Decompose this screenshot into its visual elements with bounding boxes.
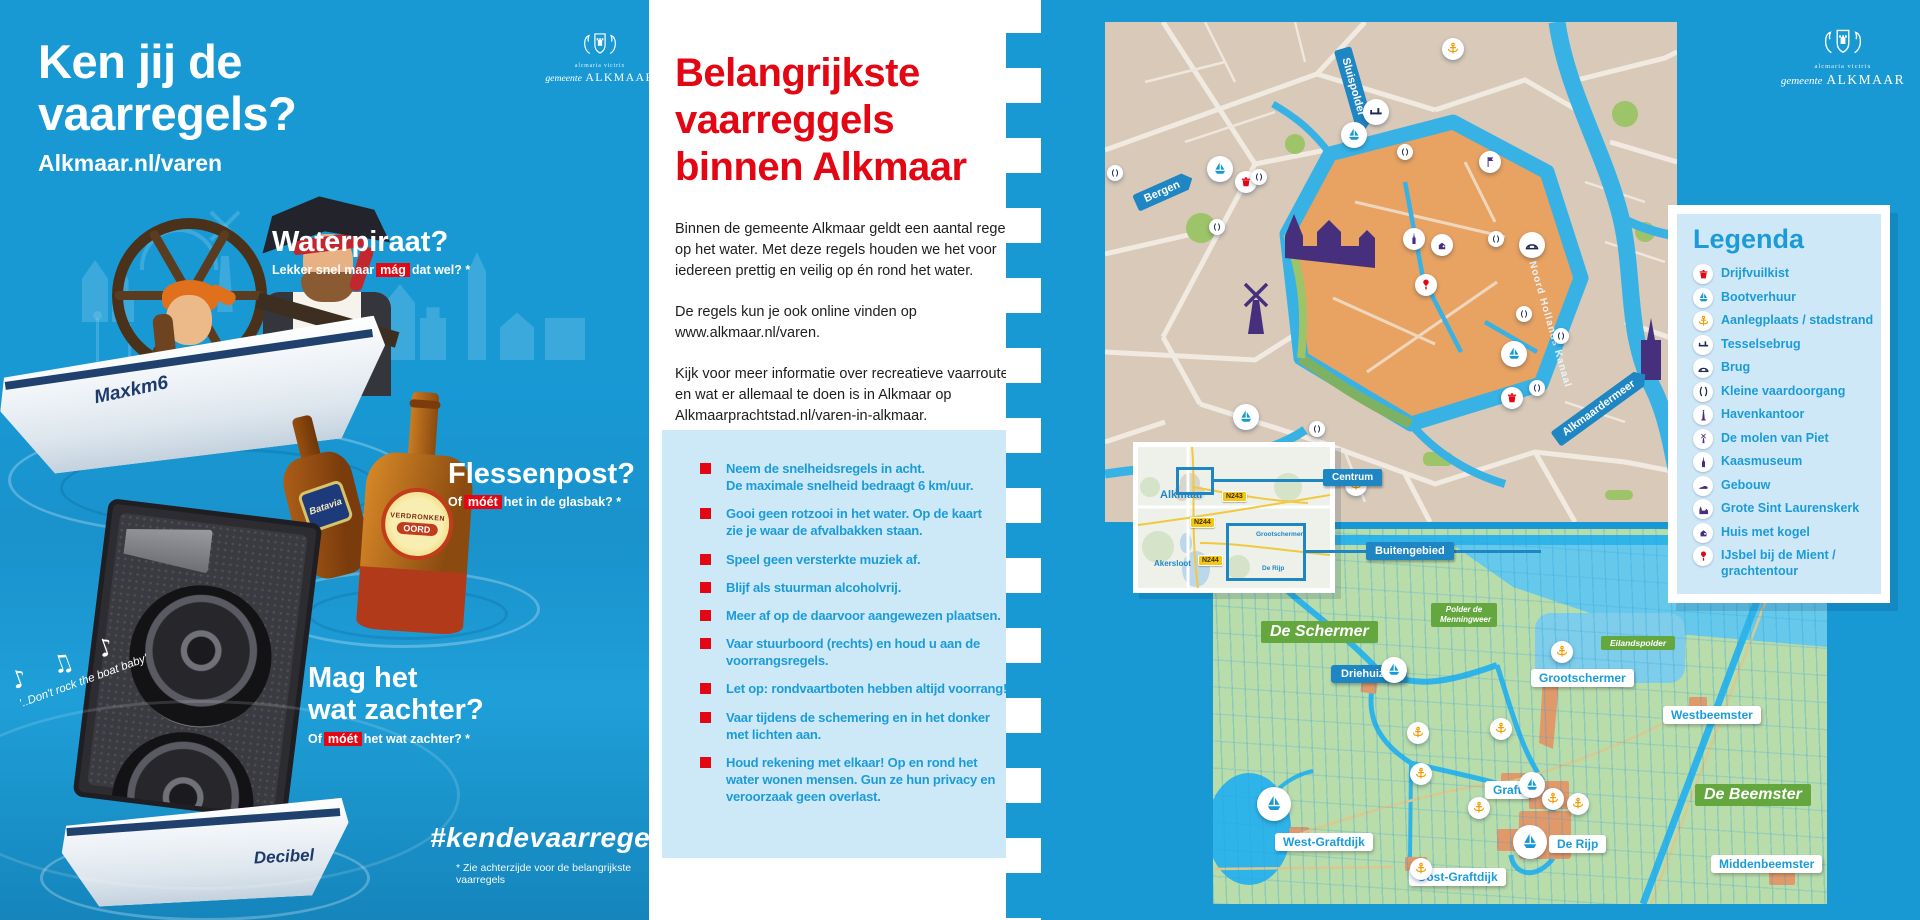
legend-title: Legenda — [1693, 224, 1881, 255]
church-tower-silhouette-icon — [468, 252, 486, 360]
inset-highlight-buitengebied — [1226, 523, 1306, 581]
area-label-schermer: De Schermer — [1261, 621, 1378, 643]
cannonball-house-icon — [1693, 523, 1713, 543]
mooring-anchor-icon — [1410, 858, 1432, 880]
inset-highlight-centrum — [1176, 467, 1214, 495]
heading-line-2: vaarreggels — [675, 98, 894, 142]
road-shield-n244: N244 — [1190, 517, 1215, 528]
rule-item: Speel geen versterkte muziek af. — [726, 551, 1008, 568]
floating-waste-bin-icon — [1693, 264, 1713, 284]
small-passage-icon — [1516, 306, 1532, 322]
rule-item: Meer af op de daarvoor aangewezen plaats… — [726, 607, 1008, 624]
page-title: Ken jij devaarregels? — [38, 36, 296, 139]
logo-org: gemeente — [545, 73, 582, 84]
legend-label: Brug — [1721, 358, 1750, 376]
inset-label-centrum: Centrum — [1323, 469, 1382, 486]
logo-name: ALKMAAR — [1826, 72, 1905, 87]
legend-label: Tesselsebrug — [1721, 335, 1801, 353]
intro-paragraph: Kijk voor meer informatie over recreatie… — [675, 364, 1031, 427]
subtitle-text: het in de glasbak? * — [504, 495, 621, 509]
boat-rental-icon — [1519, 772, 1545, 798]
legend-label: Huis met kogel — [1721, 523, 1810, 541]
logo-wordmark: gemeenteALKMAAR — [1781, 71, 1905, 89]
legend-item: Gebouw — [1693, 476, 1881, 496]
cheese-museum-icon — [1403, 228, 1425, 250]
rules-heading: Belangrijkste vaarreggels binnen Alkmaar — [675, 50, 967, 190]
alkmaar-crest-icon — [574, 30, 625, 62]
gemeente-alkmaar-logo: alcmaria victrix gemeenteALKMAAR — [1788, 26, 1898, 89]
small-passage-icon — [1488, 231, 1504, 247]
legend-item: Tesselsebrug — [1693, 335, 1881, 355]
legend-label: Kleine vaardoorgang — [1721, 382, 1845, 400]
region-label-buitengebied: Buitengebied — [1366, 542, 1454, 560]
small-passage-icon — [1529, 380, 1545, 396]
boat-rental-icon — [1341, 122, 1367, 148]
logo-org: gemeente — [1781, 75, 1823, 87]
tessel-bridge-icon — [1693, 335, 1713, 355]
legend-item: De molen van Piet — [1693, 429, 1881, 449]
question-title: Flessenpost? — [448, 458, 635, 490]
legend-label: Gebouw — [1721, 476, 1770, 494]
harbor-office-icon — [1693, 405, 1713, 425]
bottle-label-line2: OORD — [396, 521, 438, 536]
bridge-icon — [1693, 358, 1713, 378]
legend-item: Drijfvuilkist — [1693, 264, 1881, 284]
inset-overview-map: Alkmaar Grootschermer De Rijp Akersloot … — [1133, 442, 1335, 593]
legend-item: Aanlegplaats / stadstrand — [1693, 311, 1881, 331]
intro-text: Binnen de gemeente Alkmaar geldt een aan… — [675, 219, 1031, 447]
alkmaar-crest-icon — [1814, 26, 1872, 62]
legend-items: Drijfvuilkist Bootverhuur Aanlegplaats /… — [1693, 264, 1881, 579]
sawtooth-divider — [1006, 0, 1041, 920]
legend-item: Huis met kogel — [1693, 523, 1881, 543]
legend-item: Havenkantoor — [1693, 405, 1881, 425]
title-line-2: vaarregels? — [38, 87, 296, 140]
intro-paragraph: De regels kun je ook online vinden op ww… — [675, 302, 1031, 344]
harbor-flag-icon — [1479, 151, 1501, 173]
small-passage-icon — [1107, 165, 1123, 181]
place-label-de-rijp: De Rijp — [1549, 835, 1606, 853]
small-passage-icon — [1693, 382, 1713, 402]
logo-wordmark: gemeenteALKMAAR — [545, 70, 654, 86]
church-icon — [1693, 499, 1713, 519]
legend-item: Kleine vaardoorgang — [1693, 382, 1881, 402]
front-cover-panel: Ken jij devaarregels? Alkmaar.nl/varen — [0, 0, 649, 920]
campaign-hashtag: #kendevaarregels — [430, 822, 649, 854]
area-label-eilandspolder: Eilandspolder — [1601, 636, 1675, 650]
floating-waste-bin-icon — [1501, 387, 1523, 409]
legend-item: Kaasmuseum — [1693, 452, 1881, 472]
mooring-anchor-icon — [1567, 793, 1589, 815]
heading-line-3: binnen Alkmaar — [675, 145, 967, 189]
question-title: Waterpiraat? — [272, 226, 470, 258]
question-flessenpost: Flessenpost? Ofmóéthet in de glasbak? * — [448, 458, 635, 509]
title-line-1: Ken jij de — [38, 35, 242, 88]
small-passage-icon — [1209, 219, 1225, 235]
question-subtitle: Ofmóéthet in de glasbak? * — [448, 495, 635, 509]
icecream-canal-tour-icon — [1693, 546, 1713, 566]
area-label-menningweer: Polder de Menningweer — [1431, 603, 1497, 627]
rule-item: Blijf als stuurman alcoholvrij. — [726, 579, 1008, 596]
footnote: * Zie achterzijde voor de belangrijkste … — [456, 862, 649, 886]
logo-motto: alcmaria victrix — [575, 63, 625, 69]
mooring-anchor-icon — [1693, 311, 1713, 331]
legend-item: Brug — [1693, 358, 1881, 378]
intro-paragraph: Binnen de gemeente Alkmaar geldt een aan… — [675, 219, 1031, 282]
rule-item: Gooi geen rotzooi in het water. Op de ka… — [726, 505, 1008, 539]
subtitle-text: Of — [448, 495, 462, 509]
mooring-anchor-icon — [1490, 718, 1512, 740]
legend-item: IJsbel bij de Mient / grachtentour — [1693, 546, 1881, 579]
brochure-spread: Ken jij devaarregels? Alkmaar.nl/varen — [0, 0, 1920, 920]
mooring-anchor-icon — [1542, 788, 1564, 810]
subtitle-text: dat wel? * — [412, 263, 470, 277]
boat-rental-icon — [1693, 288, 1713, 308]
cannonball-house-icon — [1431, 234, 1453, 256]
legend-item: Bootverhuur — [1693, 288, 1881, 308]
legend-label: Bootverhuur — [1721, 288, 1796, 306]
legend-body: Legenda Drijfvuilkist Bootverhuur Aanleg… — [1677, 214, 1881, 594]
rule-item: Neem de snelheidsregels in acht. De maxi… — [726, 460, 1008, 494]
inset-label-akersloot: Akersloot — [1154, 559, 1191, 568]
small-passage-icon — [1553, 328, 1569, 344]
rule-item: Houd rekening met elkaar! Op en rond het… — [726, 754, 1008, 805]
rule-item: Vaar tijdens de schemering en in het don… — [726, 709, 1008, 743]
canal-house-icon — [545, 318, 585, 360]
legend-label: Kaasmuseum — [1721, 452, 1802, 470]
place-label-westbeemster: Westbeemster — [1663, 706, 1761, 724]
boat-rental-icon — [1257, 787, 1291, 821]
rule-item: Vaar stuurboord (rechts) en houd u aan d… — [726, 635, 1008, 669]
cheese-museum-icon — [1693, 452, 1713, 472]
bottle-label-line1: VERDRONKEN — [390, 512, 445, 523]
subtitle-text: Lekker snel maar — [272, 263, 374, 277]
legend-label: IJsbel bij de Mient / grachtentour — [1721, 546, 1881, 579]
question-subtitle: Lekker snel maarmágdat wel? * — [272, 263, 470, 277]
icecream-canal-tour-icon — [1415, 274, 1437, 296]
heading-line-1: Belangrijkste — [675, 51, 920, 95]
road-shield-n244: N244 — [1198, 555, 1223, 566]
legend-label: Drijfvuilkist — [1721, 264, 1789, 282]
boat-rental-icon — [1513, 825, 1547, 859]
windmill-icon — [1693, 429, 1713, 449]
legend-label: De molen van Piet — [1721, 429, 1829, 447]
canal-house-icon — [500, 310, 534, 360]
building-icon — [1693, 476, 1713, 496]
highlighted-word: mág — [376, 263, 410, 277]
boat-rental-icon — [1501, 341, 1527, 367]
place-label-grootschermer: Grootschermer — [1531, 669, 1634, 687]
mooring-anchor-icon — [1410, 763, 1432, 785]
legend-label: Grote Sint Laurenskerk — [1721, 499, 1859, 517]
connector-line — [1214, 479, 1323, 482]
rule-item: Let op: rondvaartboten hebben altijd voo… — [726, 680, 1008, 697]
boat-rental-icon — [1381, 657, 1407, 683]
mooring-anchor-icon — [1551, 641, 1573, 663]
question-waterpiraat: Waterpiraat? Lekker snel maarmágdat wel?… — [272, 226, 470, 277]
place-label-west-graftdijk: West-Graftdijk — [1275, 833, 1373, 851]
mooring-anchor-icon — [1468, 797, 1490, 819]
boat-rental-icon — [1207, 156, 1233, 182]
legend-label: Havenkantoor — [1721, 405, 1804, 423]
logo-motto: alcmaria victrix — [1815, 63, 1872, 70]
mooring-anchor-icon — [1407, 722, 1429, 744]
area-label-beemster: De Beemster — [1695, 784, 1811, 806]
legend: Legenda Drijfvuilkist Bootverhuur Aanleg… — [1668, 205, 1890, 603]
small-passage-icon — [1309, 421, 1325, 437]
legend-item: Grote Sint Laurenskerk — [1693, 499, 1881, 519]
title-line-1: Mag het — [308, 662, 418, 694]
small-passage-icon — [1251, 169, 1267, 185]
gemeente-alkmaar-logo: alcmaria victrix gemeenteALKMAAR — [552, 30, 649, 85]
logo-name: ALKMAAR — [585, 70, 654, 83]
bridge-icon — [1363, 99, 1389, 125]
place-label-middenbeemster: Middenbeemster — [1711, 855, 1822, 873]
road-shield-n243: N243 — [1222, 491, 1247, 502]
website-url: Alkmaar.nl/varen — [38, 150, 222, 177]
small-passage-icon — [1397, 144, 1413, 160]
rules-list: Neem de snelheidsregels in acht. De maxi… — [662, 430, 1012, 858]
boat-rental-icon — [1233, 404, 1259, 430]
legend-label: Aanlegplaats / stadstrand — [1721, 311, 1873, 329]
mooring-anchor-icon — [1442, 38, 1464, 60]
highlighted-word: móét — [464, 495, 502, 509]
bridge-icon — [1519, 232, 1545, 258]
